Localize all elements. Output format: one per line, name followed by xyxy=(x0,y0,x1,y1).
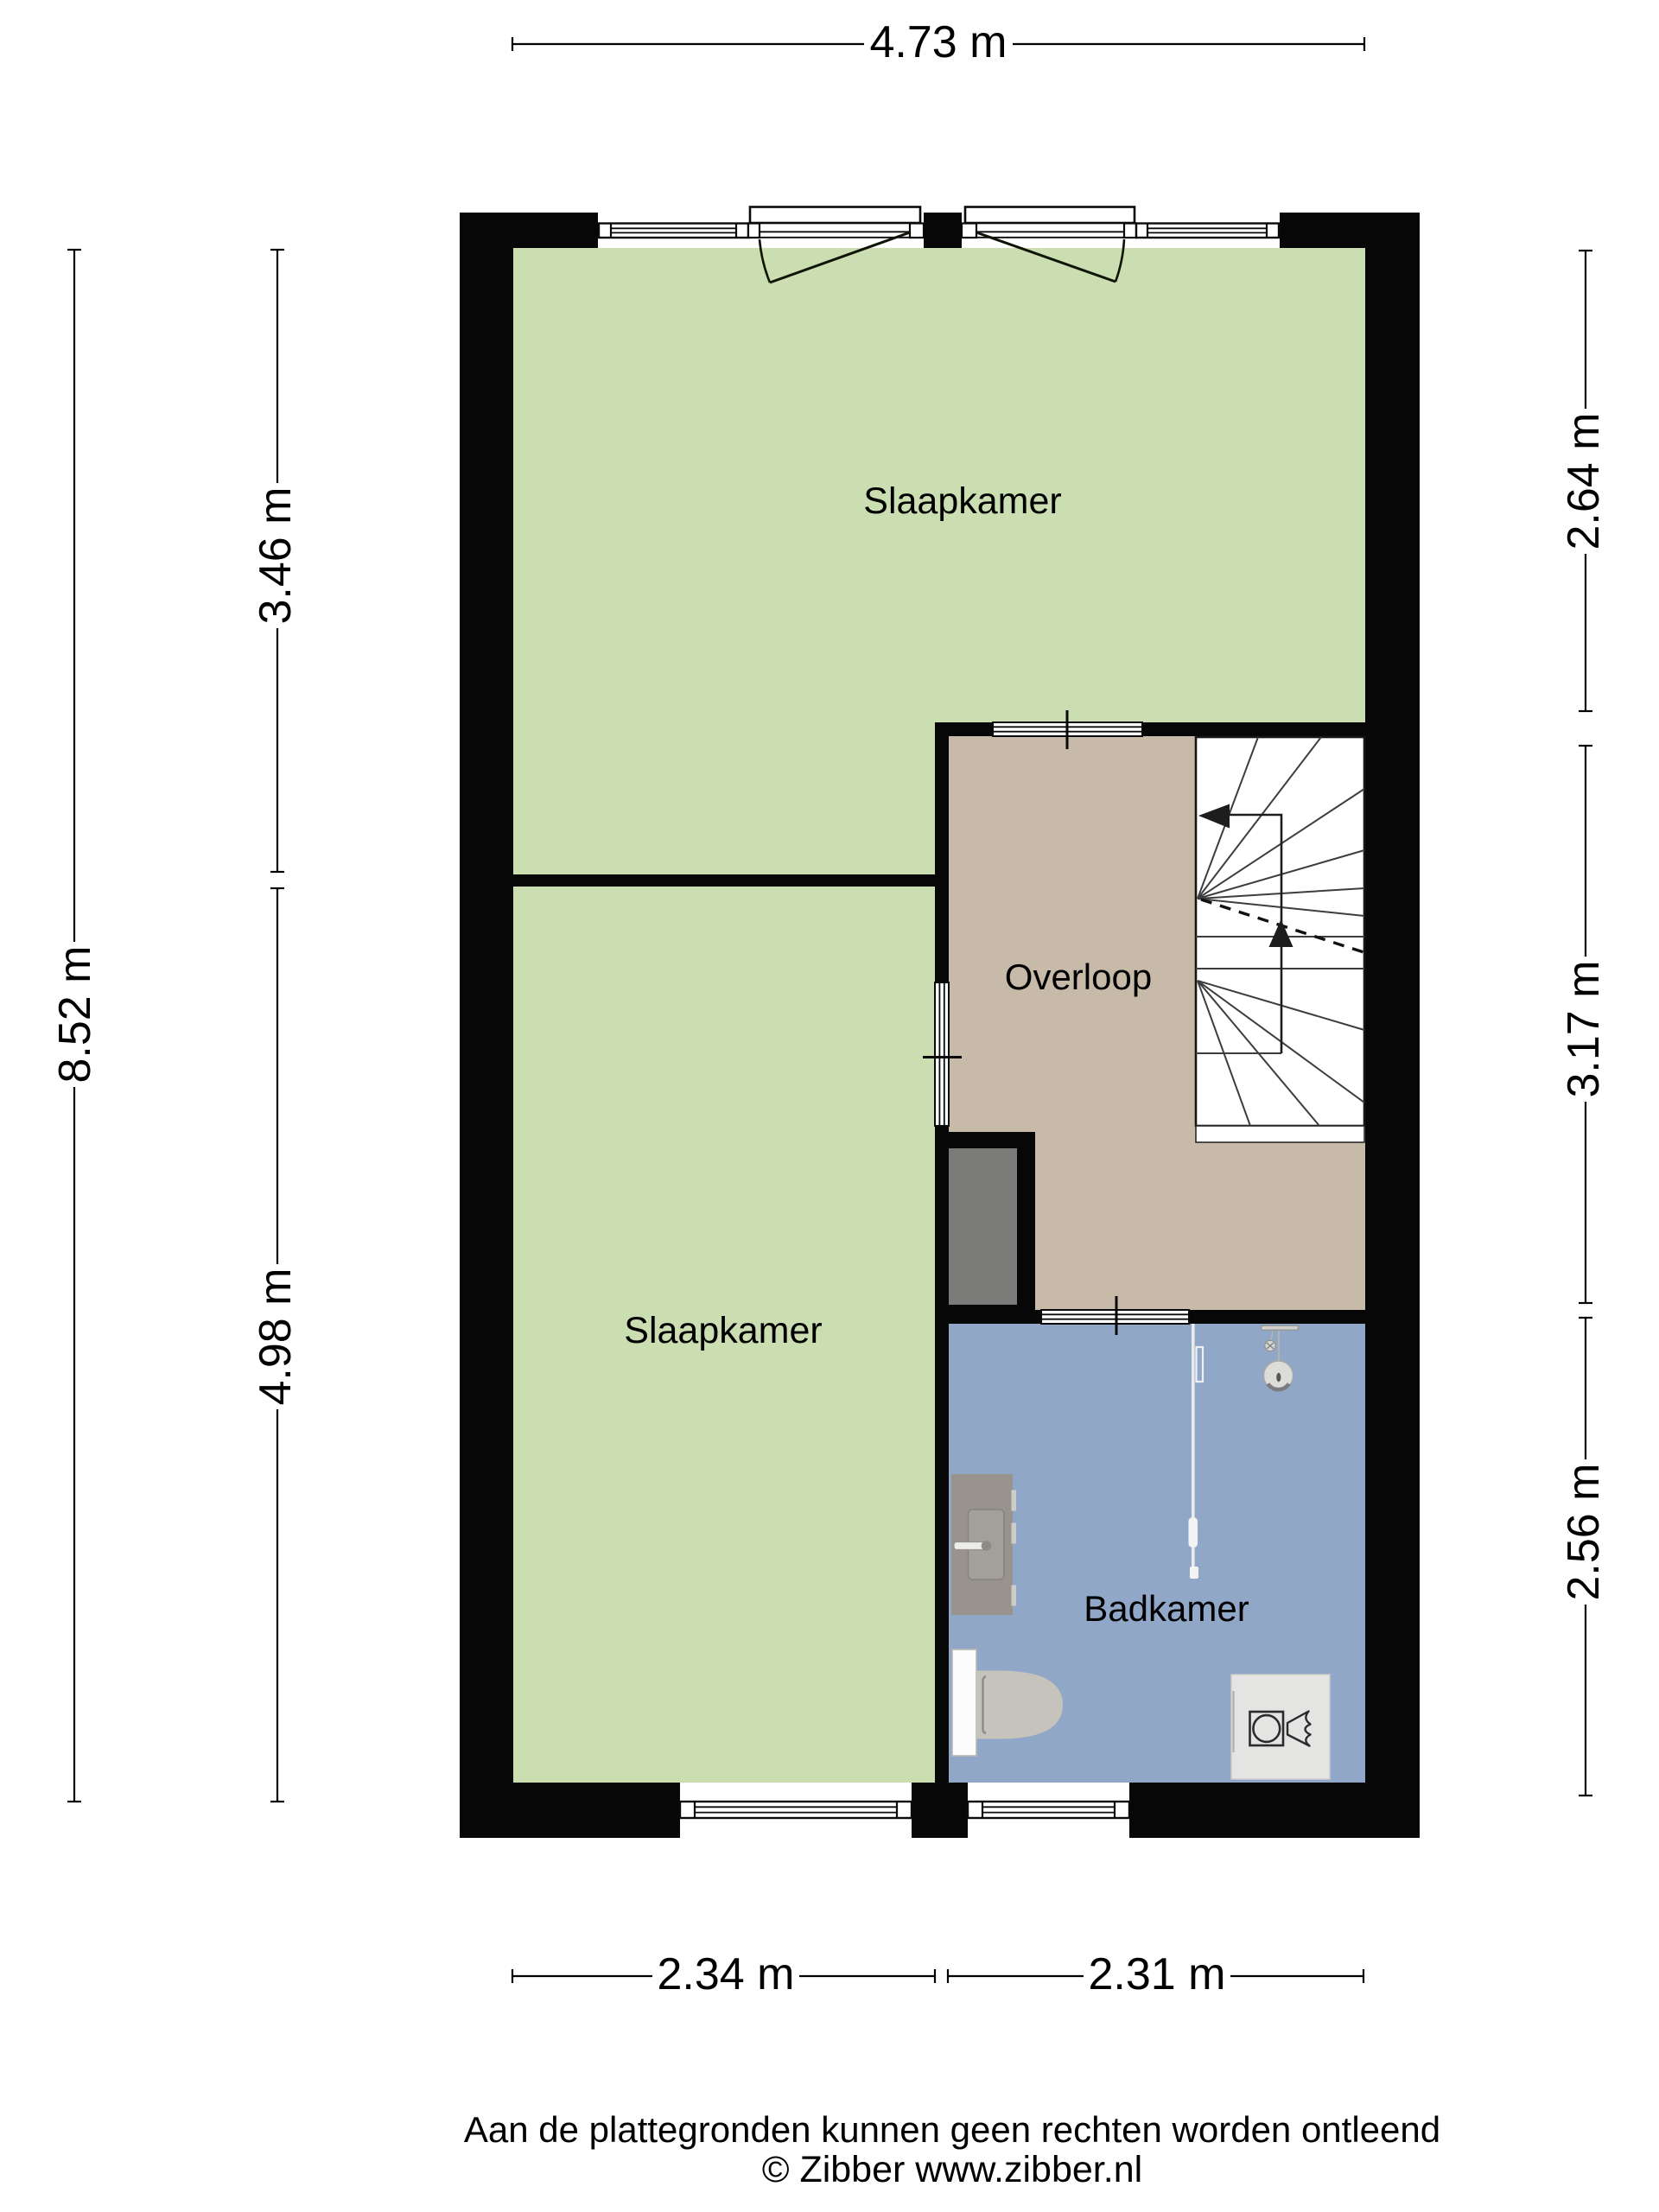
svg-text:4.98 m: 4.98 m xyxy=(251,1268,301,1406)
svg-text:2.64 m: 2.64 m xyxy=(1559,413,1609,550)
svg-text:2.56 m: 2.56 m xyxy=(1559,1464,1609,1601)
svg-text:3.17 m: 3.17 m xyxy=(1559,961,1609,1098)
svg-text:Slaapkamer: Slaapkamer xyxy=(863,480,1061,522)
svg-text:4.73 m: 4.73 m xyxy=(870,17,1007,67)
svg-text:2.34 m: 2.34 m xyxy=(658,1949,795,1999)
svg-text:© Zibber www.zibber.nl: © Zibber www.zibber.nl xyxy=(762,2149,1142,2190)
svg-text:2.31 m: 2.31 m xyxy=(1089,1949,1226,1999)
svg-text:Overloop: Overloop xyxy=(1005,957,1152,997)
svg-text:Badkamer: Badkamer xyxy=(1084,1588,1249,1629)
svg-text:Aan de plattegronden kunnen ge: Aan de plattegronden kunnen geen rechten… xyxy=(464,2109,1440,2150)
svg-text:8.52 m: 8.52 m xyxy=(50,946,100,1084)
svg-text:Slaapkamer: Slaapkamer xyxy=(624,1310,822,1351)
svg-text:3.46 m: 3.46 m xyxy=(251,487,301,625)
